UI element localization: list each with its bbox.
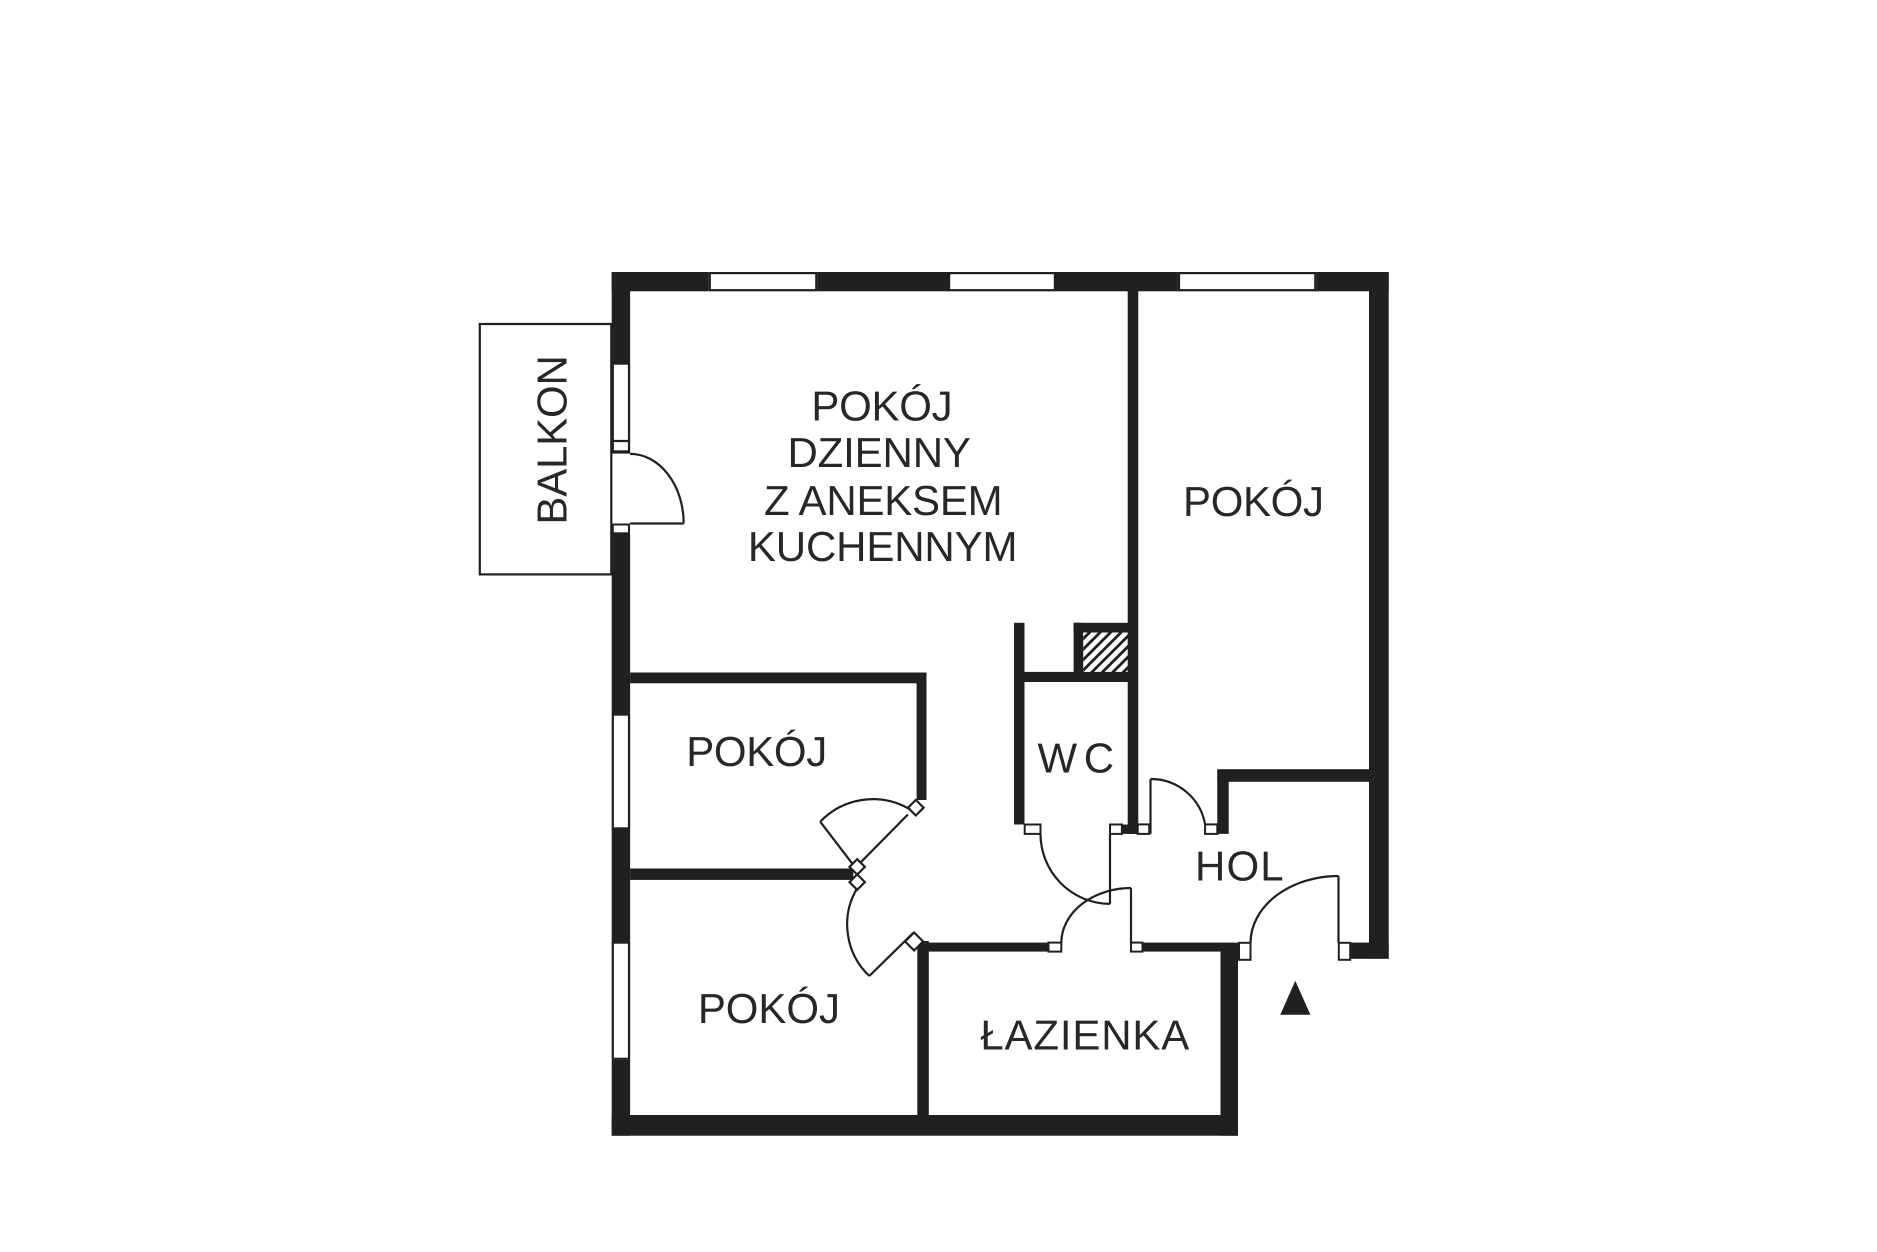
svg-text:BALKON: BALKON — [528, 355, 575, 524]
svg-text:Z ANEKSEM: Z ANEKSEM — [764, 477, 1003, 524]
svg-text:POKÓJ: POKÓJ — [811, 383, 952, 430]
svg-text:POKÓJ: POKÓJ — [698, 985, 840, 1032]
svg-text:DZIENNY: DZIENNY — [788, 429, 971, 476]
svg-text:HOL: HOL — [1195, 843, 1284, 890]
svg-text:POKÓJ: POKÓJ — [1183, 478, 1324, 525]
svg-text:KUCHENNYM: KUCHENNYM — [748, 523, 1018, 570]
svg-text:POKÓJ: POKÓJ — [686, 728, 827, 775]
svg-text:WC: WC — [1038, 734, 1115, 781]
svg-text:ŁAZIENKA: ŁAZIENKA — [980, 1011, 1189, 1058]
